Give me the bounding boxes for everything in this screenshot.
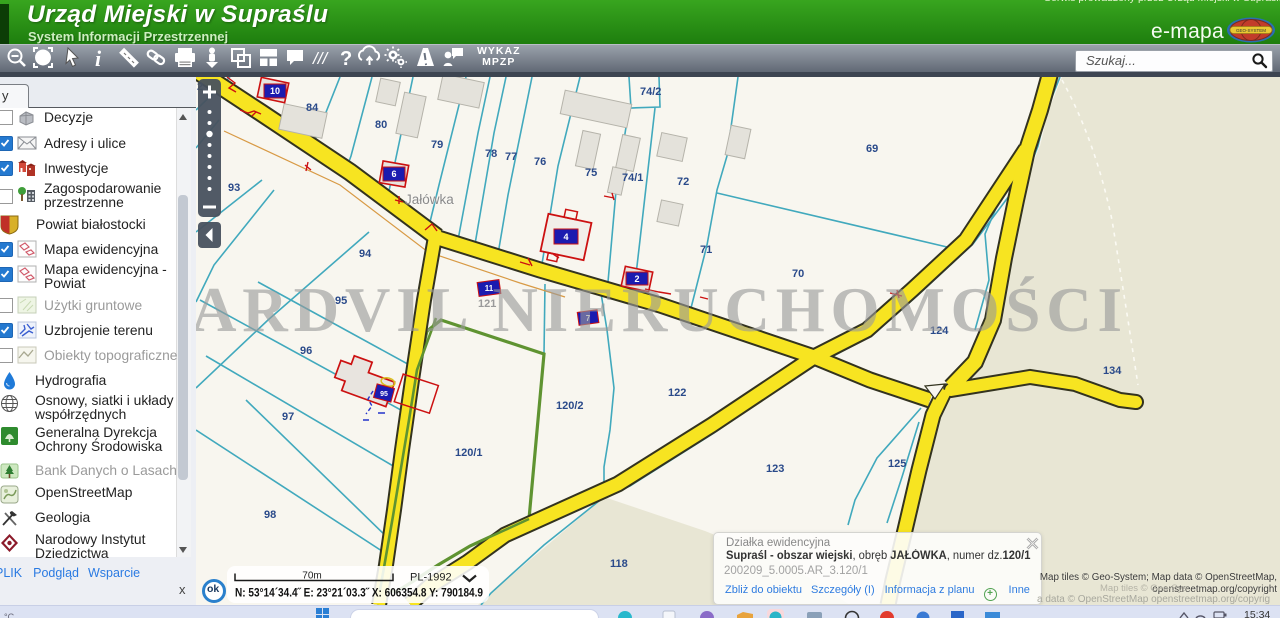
svg-text:10: 10 bbox=[270, 86, 280, 96]
svg-text:Jałówka: Jałówka bbox=[405, 192, 454, 207]
svg-text:120/1: 120/1 bbox=[455, 447, 483, 459]
svg-text:69: 69 bbox=[866, 143, 878, 155]
svg-text:?: ? bbox=[340, 48, 352, 70]
svg-text:76: 76 bbox=[534, 156, 546, 168]
svg-text:i: i bbox=[95, 46, 102, 71]
svg-text:94: 94 bbox=[359, 248, 372, 260]
svg-text:6: 6 bbox=[391, 169, 396, 179]
svg-text:72: 72 bbox=[677, 176, 689, 188]
svg-text:96: 96 bbox=[300, 345, 312, 357]
svg-text:93: 93 bbox=[228, 182, 240, 194]
svg-text:74/2: 74/2 bbox=[640, 86, 661, 98]
svg-text:84: 84 bbox=[306, 102, 319, 114]
svg-text:95: 95 bbox=[380, 391, 388, 398]
svg-text:70m: 70m bbox=[302, 571, 321, 582]
svg-text:74/1: 74/1 bbox=[622, 172, 643, 184]
svg-text:123: 123 bbox=[766, 463, 784, 475]
svg-text:75: 75 bbox=[585, 167, 597, 179]
svg-text:118: 118 bbox=[610, 558, 628, 570]
svg-text:122: 122 bbox=[668, 387, 686, 399]
svg-text:4: 4 bbox=[563, 232, 568, 242]
svg-text:71: 71 bbox=[700, 244, 712, 256]
svg-text:77: 77 bbox=[505, 151, 517, 163]
svg-text:134: 134 bbox=[1103, 365, 1122, 377]
svg-text:97: 97 bbox=[282, 411, 294, 423]
svg-text:79: 79 bbox=[431, 139, 443, 151]
svg-text:80: 80 bbox=[375, 119, 387, 131]
svg-text:125: 125 bbox=[888, 458, 906, 470]
svg-text:N: 53°14´34.4˝ E: 23°21´03.3˝: N: 53°14´34.4˝ E: 23°21´03.3˝ X: 606354.… bbox=[235, 586, 483, 600]
svg-text:ARDVIL NIERUCHOMOŚCI: ARDVIL NIERUCHOMOŚCI bbox=[196, 275, 1128, 345]
svg-text:PL-1992: PL-1992 bbox=[410, 572, 452, 584]
svg-text:GEO-SYSTEM: GEO-SYSTEM bbox=[1236, 28, 1266, 33]
svg-text:///: /// bbox=[312, 49, 329, 68]
svg-text:98: 98 bbox=[264, 509, 276, 521]
svg-text:120/2: 120/2 bbox=[556, 400, 584, 412]
svg-text:78: 78 bbox=[485, 148, 497, 160]
